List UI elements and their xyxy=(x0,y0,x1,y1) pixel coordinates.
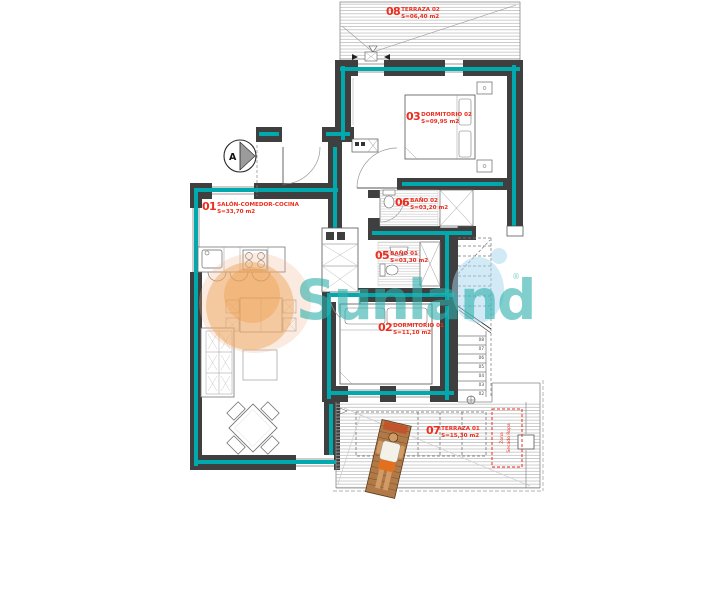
room-area: S=11,10 m2 xyxy=(393,330,444,337)
room-number: 07 xyxy=(426,426,440,436)
room-number: 05 xyxy=(375,251,389,261)
svg-text:08: 08 xyxy=(479,337,485,342)
room-number: 01 xyxy=(202,202,216,212)
pillow-icon xyxy=(459,131,471,157)
bedroom-02-furniture xyxy=(405,82,492,172)
room-area: S=03,20 m2 xyxy=(410,205,448,212)
floor-plan-drawing: A xyxy=(0,0,724,600)
room-label-bano-01: 05 BAÑO 01S=03,30 m2 xyxy=(375,251,428,264)
stair-step-numbers: 08 07 06 05 04 03 02 xyxy=(479,337,485,396)
room-number: 06 xyxy=(395,198,409,208)
section-marker: A xyxy=(224,140,256,172)
svg-text:07: 07 xyxy=(479,346,485,351)
nightstand-icon xyxy=(477,82,492,94)
room-name: TERRAZA 02 xyxy=(401,7,440,14)
room-number: 03 xyxy=(406,112,420,122)
room-label-terraza-02: 08 TERRAZA 02S=06,40 m2 xyxy=(386,7,440,20)
svg-text:03: 03 xyxy=(479,382,485,387)
room-label-dormitorio-02: 03 DORMITORIO 02S=09,95 m2 xyxy=(406,112,472,125)
drying-zone-label: Secado Ropa xyxy=(506,423,512,452)
room-name: DORMITORIO 01 xyxy=(393,323,444,330)
rug xyxy=(243,350,277,380)
floor-plan: A xyxy=(0,0,724,600)
room-label-dormitorio-01: 02 DORMITORIO 01S=11,10 m2 xyxy=(378,323,444,336)
room-name: BAÑO 01 xyxy=(390,251,428,258)
svg-text:04: 04 xyxy=(479,373,485,378)
room-area: S=06,40 m2 xyxy=(401,14,440,21)
room-area: S=33,70 m2 xyxy=(217,209,299,216)
svg-text:06: 06 xyxy=(479,355,485,360)
svg-text:05: 05 xyxy=(479,364,485,369)
room-area: S=09,95 m2 xyxy=(421,119,472,126)
room-label-salon: 01 SALÓN-COMEDOR-COCINAS=33,70 m2 xyxy=(202,202,299,215)
room-label-terraza-01: 07 TERRAZA 01S=15,30 m2 xyxy=(426,426,480,439)
entry-door-arc xyxy=(283,147,320,184)
drying-zone-label: Zona xyxy=(499,432,505,444)
svg-text:02: 02 xyxy=(479,391,485,396)
nightstand-icon xyxy=(477,160,492,172)
toilet-icon xyxy=(384,196,394,208)
toilet-icon xyxy=(383,190,395,195)
room-area: S=03,30 m2 xyxy=(390,258,428,265)
entry-closet xyxy=(352,139,378,152)
room-number: 08 xyxy=(386,7,400,17)
room-name: DORMITORIO 02 xyxy=(421,112,472,119)
section-marker-label: A xyxy=(229,152,237,163)
room-name: TERRAZA 01 xyxy=(441,426,480,433)
room-name: SALÓN-COMEDOR-COCINA xyxy=(217,202,299,209)
person-shirt xyxy=(379,440,401,463)
room-label-bano-02: 06 BAÑO 02S=03,20 m2 xyxy=(395,198,448,211)
watermark-registered-mark: ® xyxy=(512,272,520,281)
bedroom-02-door-arc xyxy=(357,148,397,188)
room-name: BAÑO 02 xyxy=(410,198,448,205)
room-number: 02 xyxy=(378,323,392,333)
gate-handle xyxy=(518,435,534,449)
room-area: S=15,30 m2 xyxy=(441,433,480,440)
